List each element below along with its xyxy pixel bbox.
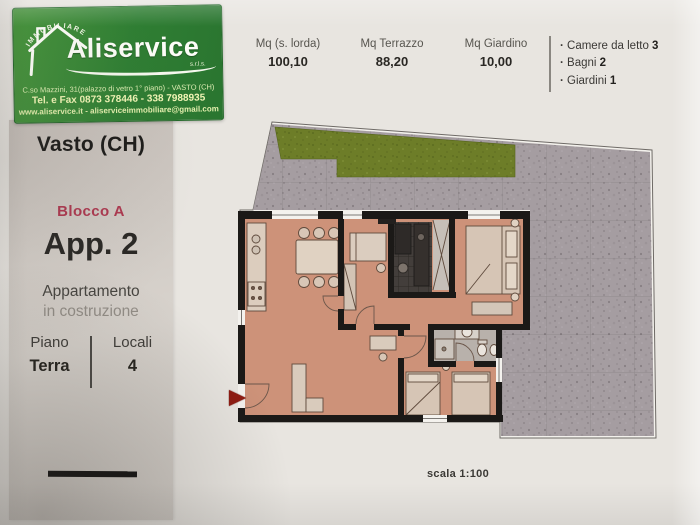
agency-logo-card: IMMOBILIARE Aliservice s.r.l.s. C.so Maz… (12, 4, 224, 124)
kitchen-sink (252, 246, 260, 254)
nightstand (511, 293, 519, 301)
bathroom-1-sink (398, 263, 408, 273)
kitchen-sink (252, 235, 260, 243)
sofa (306, 398, 323, 412)
stat-value: 88,20 (352, 54, 432, 69)
feature-bathrooms: Bagni 2 (560, 55, 658, 72)
pillow (506, 263, 517, 289)
chair (329, 277, 340, 288)
stat-value: 10,00 (456, 54, 536, 69)
chair (377, 264, 386, 273)
apartment-title: App. 2 (9, 226, 173, 262)
block-label: Blocco A (9, 203, 173, 220)
chair (329, 228, 340, 239)
bench (472, 302, 512, 315)
toilet (478, 344, 487, 356)
chair (299, 228, 310, 239)
desk (370, 336, 396, 350)
rooms-column: Locali 4 (92, 334, 173, 388)
city-title: Vasto (CH) (9, 133, 173, 157)
feature-gardens: Giardini 1 (560, 73, 658, 90)
agency-address-block: C.so Mazzini, 31(palazzo di vetro 1° pia… (16, 82, 221, 117)
construction-status: in costruzione (9, 303, 173, 321)
property-type: Appartamento (9, 283, 173, 301)
pillow (454, 374, 488, 382)
floor-value: Terra (9, 357, 90, 376)
sofa (292, 364, 306, 412)
dining-table (296, 240, 338, 274)
chair (314, 228, 325, 239)
pillow (408, 374, 438, 382)
stat-label: Mq (s. lorda) (248, 38, 328, 50)
floor-column: Piano Terra (9, 334, 90, 388)
chair (379, 353, 387, 361)
stat-terrace-area: Mq Terrazzo 88,20 (352, 38, 432, 69)
stat-label: Mq Giardino (456, 38, 536, 50)
nightstand (511, 219, 519, 227)
surface-stats: Mq (s. lorda) 100,10 Mq Terrazzo 88,20 M… (248, 38, 536, 69)
floor-rooms-grid: Piano Terra Locali 4 (9, 334, 173, 388)
feature-bedrooms: Camere da letto 3 (560, 38, 658, 55)
scale-label: scala 1:100 (398, 468, 518, 480)
floor-label: Piano (9, 334, 90, 351)
rooms-label: Locali (92, 334, 173, 351)
listing-sheet: IMMOBILIARE Aliservice s.r.l.s. C.so Maz… (0, 0, 700, 525)
chair (299, 277, 310, 288)
stove (248, 282, 265, 306)
feature-list: Camere da letto 3 Bagni 2 Giardini 1 (549, 36, 658, 92)
bed-middle-room (350, 233, 386, 261)
pillow (506, 231, 517, 257)
redacted-bar (48, 471, 137, 478)
house-wall-line (31, 50, 33, 74)
listing-info-card: Vasto (CH) Blocco A App. 2 Appartamento … (9, 120, 173, 520)
rooms-value: 4 (92, 357, 173, 376)
agency-website-email: www.aliservice.it - aliserviceimmobiliar… (17, 104, 221, 118)
stat-label: Mq Terrazzo (352, 38, 432, 50)
entrance-arrow-marker (229, 390, 246, 406)
stat-value: 100,10 (248, 54, 328, 69)
chair (314, 277, 325, 288)
bathroom-1-fixture (395, 224, 411, 254)
stat-gross-area: Mq (s. lorda) 100,10 (248, 38, 328, 69)
floor-plan (238, 106, 662, 448)
stat-garden-area: Mq Giardino 10,00 (456, 38, 536, 69)
